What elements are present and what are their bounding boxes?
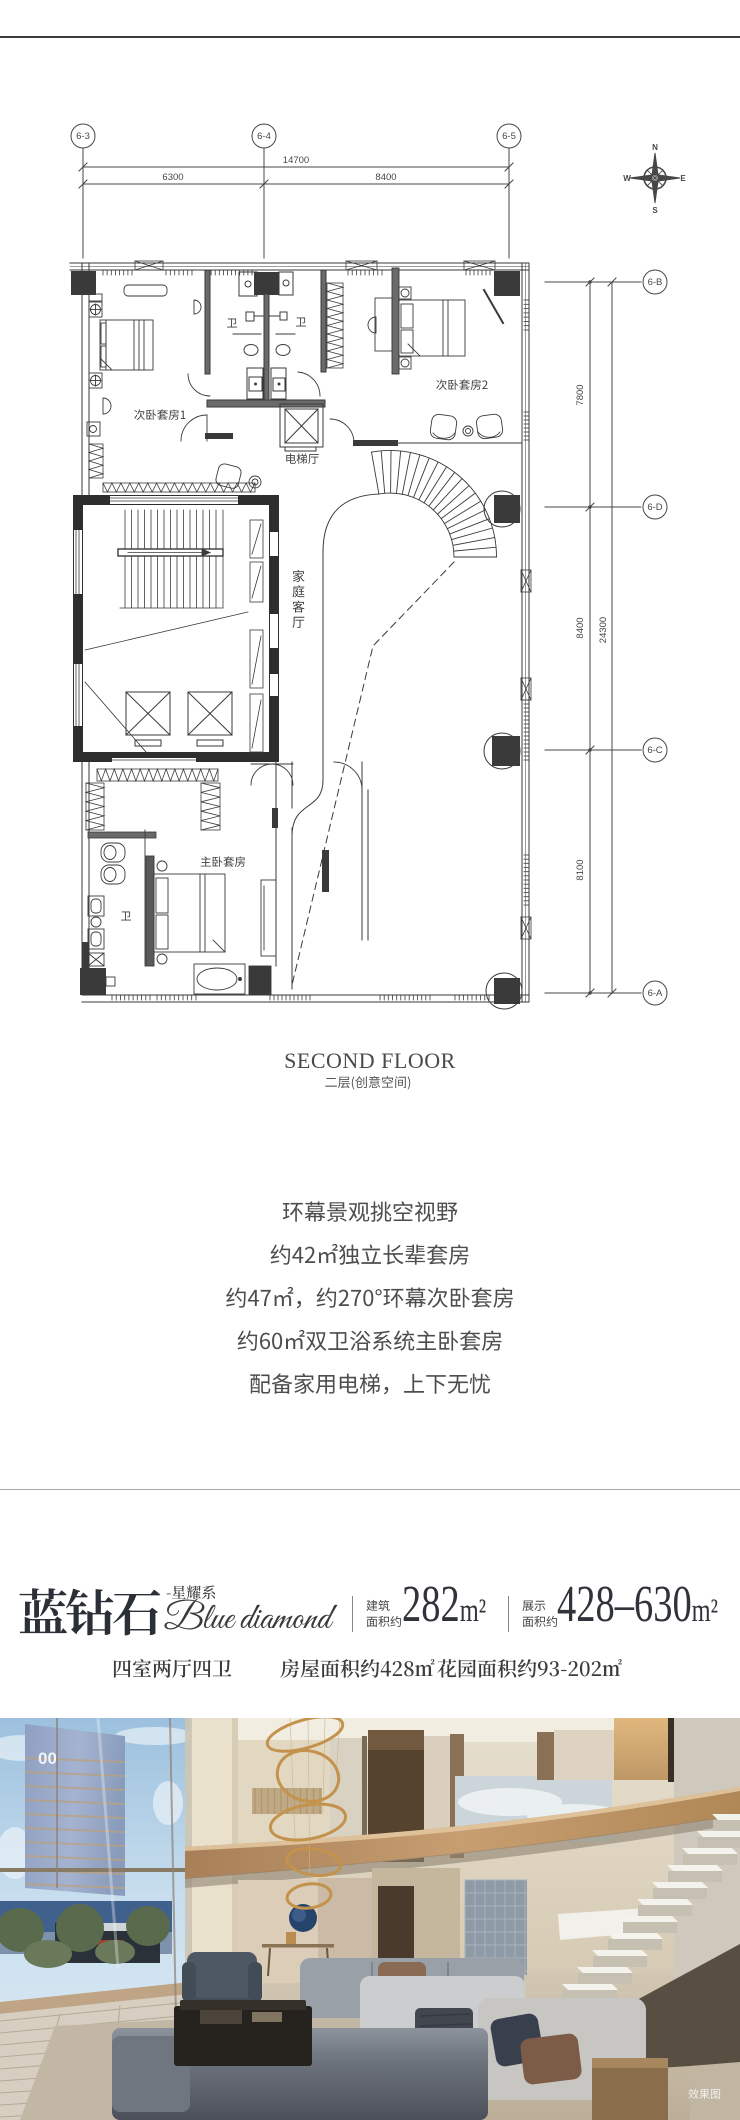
svg-text:6-3: 6-3 — [76, 131, 90, 142]
svg-text:8100: 8100 — [575, 859, 586, 880]
svg-text:24300: 24300 — [598, 617, 609, 643]
svg-text:S: S — [652, 206, 658, 215]
svg-text:6-5: 6-5 — [502, 131, 516, 142]
svg-text:8400: 8400 — [375, 172, 396, 183]
svg-text:6300: 6300 — [162, 172, 183, 183]
svg-text:N: N — [652, 143, 658, 152]
svg-text:6-4: 6-4 — [257, 131, 271, 142]
svg-text:E: E — [680, 174, 686, 183]
svg-text:6-C: 6-C — [647, 745, 662, 756]
svg-text:6-A: 6-A — [648, 988, 663, 999]
svg-text:00: 00 — [38, 1749, 57, 1768]
svg-text:7800: 7800 — [575, 384, 586, 405]
svg-text:W: W — [623, 174, 631, 183]
svg-text:14700: 14700 — [283, 155, 309, 166]
svg-text:8400: 8400 — [575, 617, 586, 638]
svg-text:6-D: 6-D — [647, 502, 662, 513]
svg-text:6-B: 6-B — [648, 277, 663, 288]
